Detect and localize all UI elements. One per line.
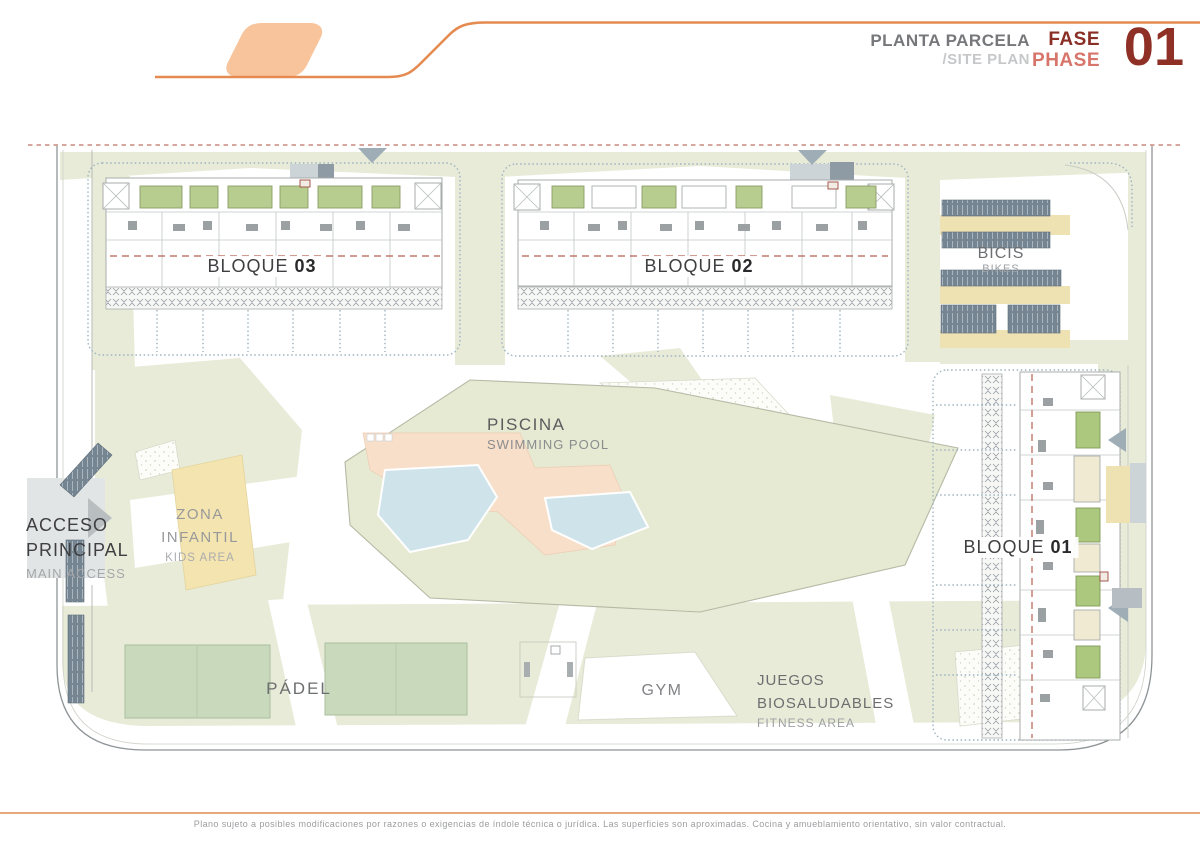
roof-terrace-boxes <box>592 186 836 208</box>
footer-divider-line <box>0 812 1200 814</box>
roof-garden-patches <box>140 186 400 208</box>
tan-strip <box>1106 466 1132 523</box>
label-bikes: BICIS BIKES <box>978 245 1025 275</box>
parking-strip-2 <box>68 615 84 703</box>
garden-dividers <box>157 310 385 352</box>
label-main-access: ACCESO PRINCIPAL MAIN ACCESS <box>26 513 129 581</box>
terrace-strip <box>518 287 892 309</box>
footer-disclaimer: Plano sujeto a posibles modificaciones p… <box>0 819 1200 829</box>
label-bloque-02: BLOQUE 02 <box>638 256 759 277</box>
terrace-strip <box>106 287 442 309</box>
label-pool: PISCINA SWIMMING POOL <box>487 415 609 452</box>
pool-steps <box>367 434 392 441</box>
garden-dividers <box>568 310 840 352</box>
label-fitness-area: JUEGOS BIOSALUDABLES FITNESS AREA <box>757 669 894 730</box>
label-padel: PÁDEL <box>266 679 332 699</box>
label-bloque-01: BLOQUE 01 <box>957 537 1078 558</box>
label-kids-area: ZONA INFANTIL KIDS AREA <box>161 503 239 564</box>
site-plan-page: PLANTA PARCELA /SITE PLAN FASE PHASE 01 <box>0 0 1200 851</box>
label-gym: GYM <box>642 682 683 700</box>
label-bloque-03: BLOQUE 03 <box>201 256 322 277</box>
